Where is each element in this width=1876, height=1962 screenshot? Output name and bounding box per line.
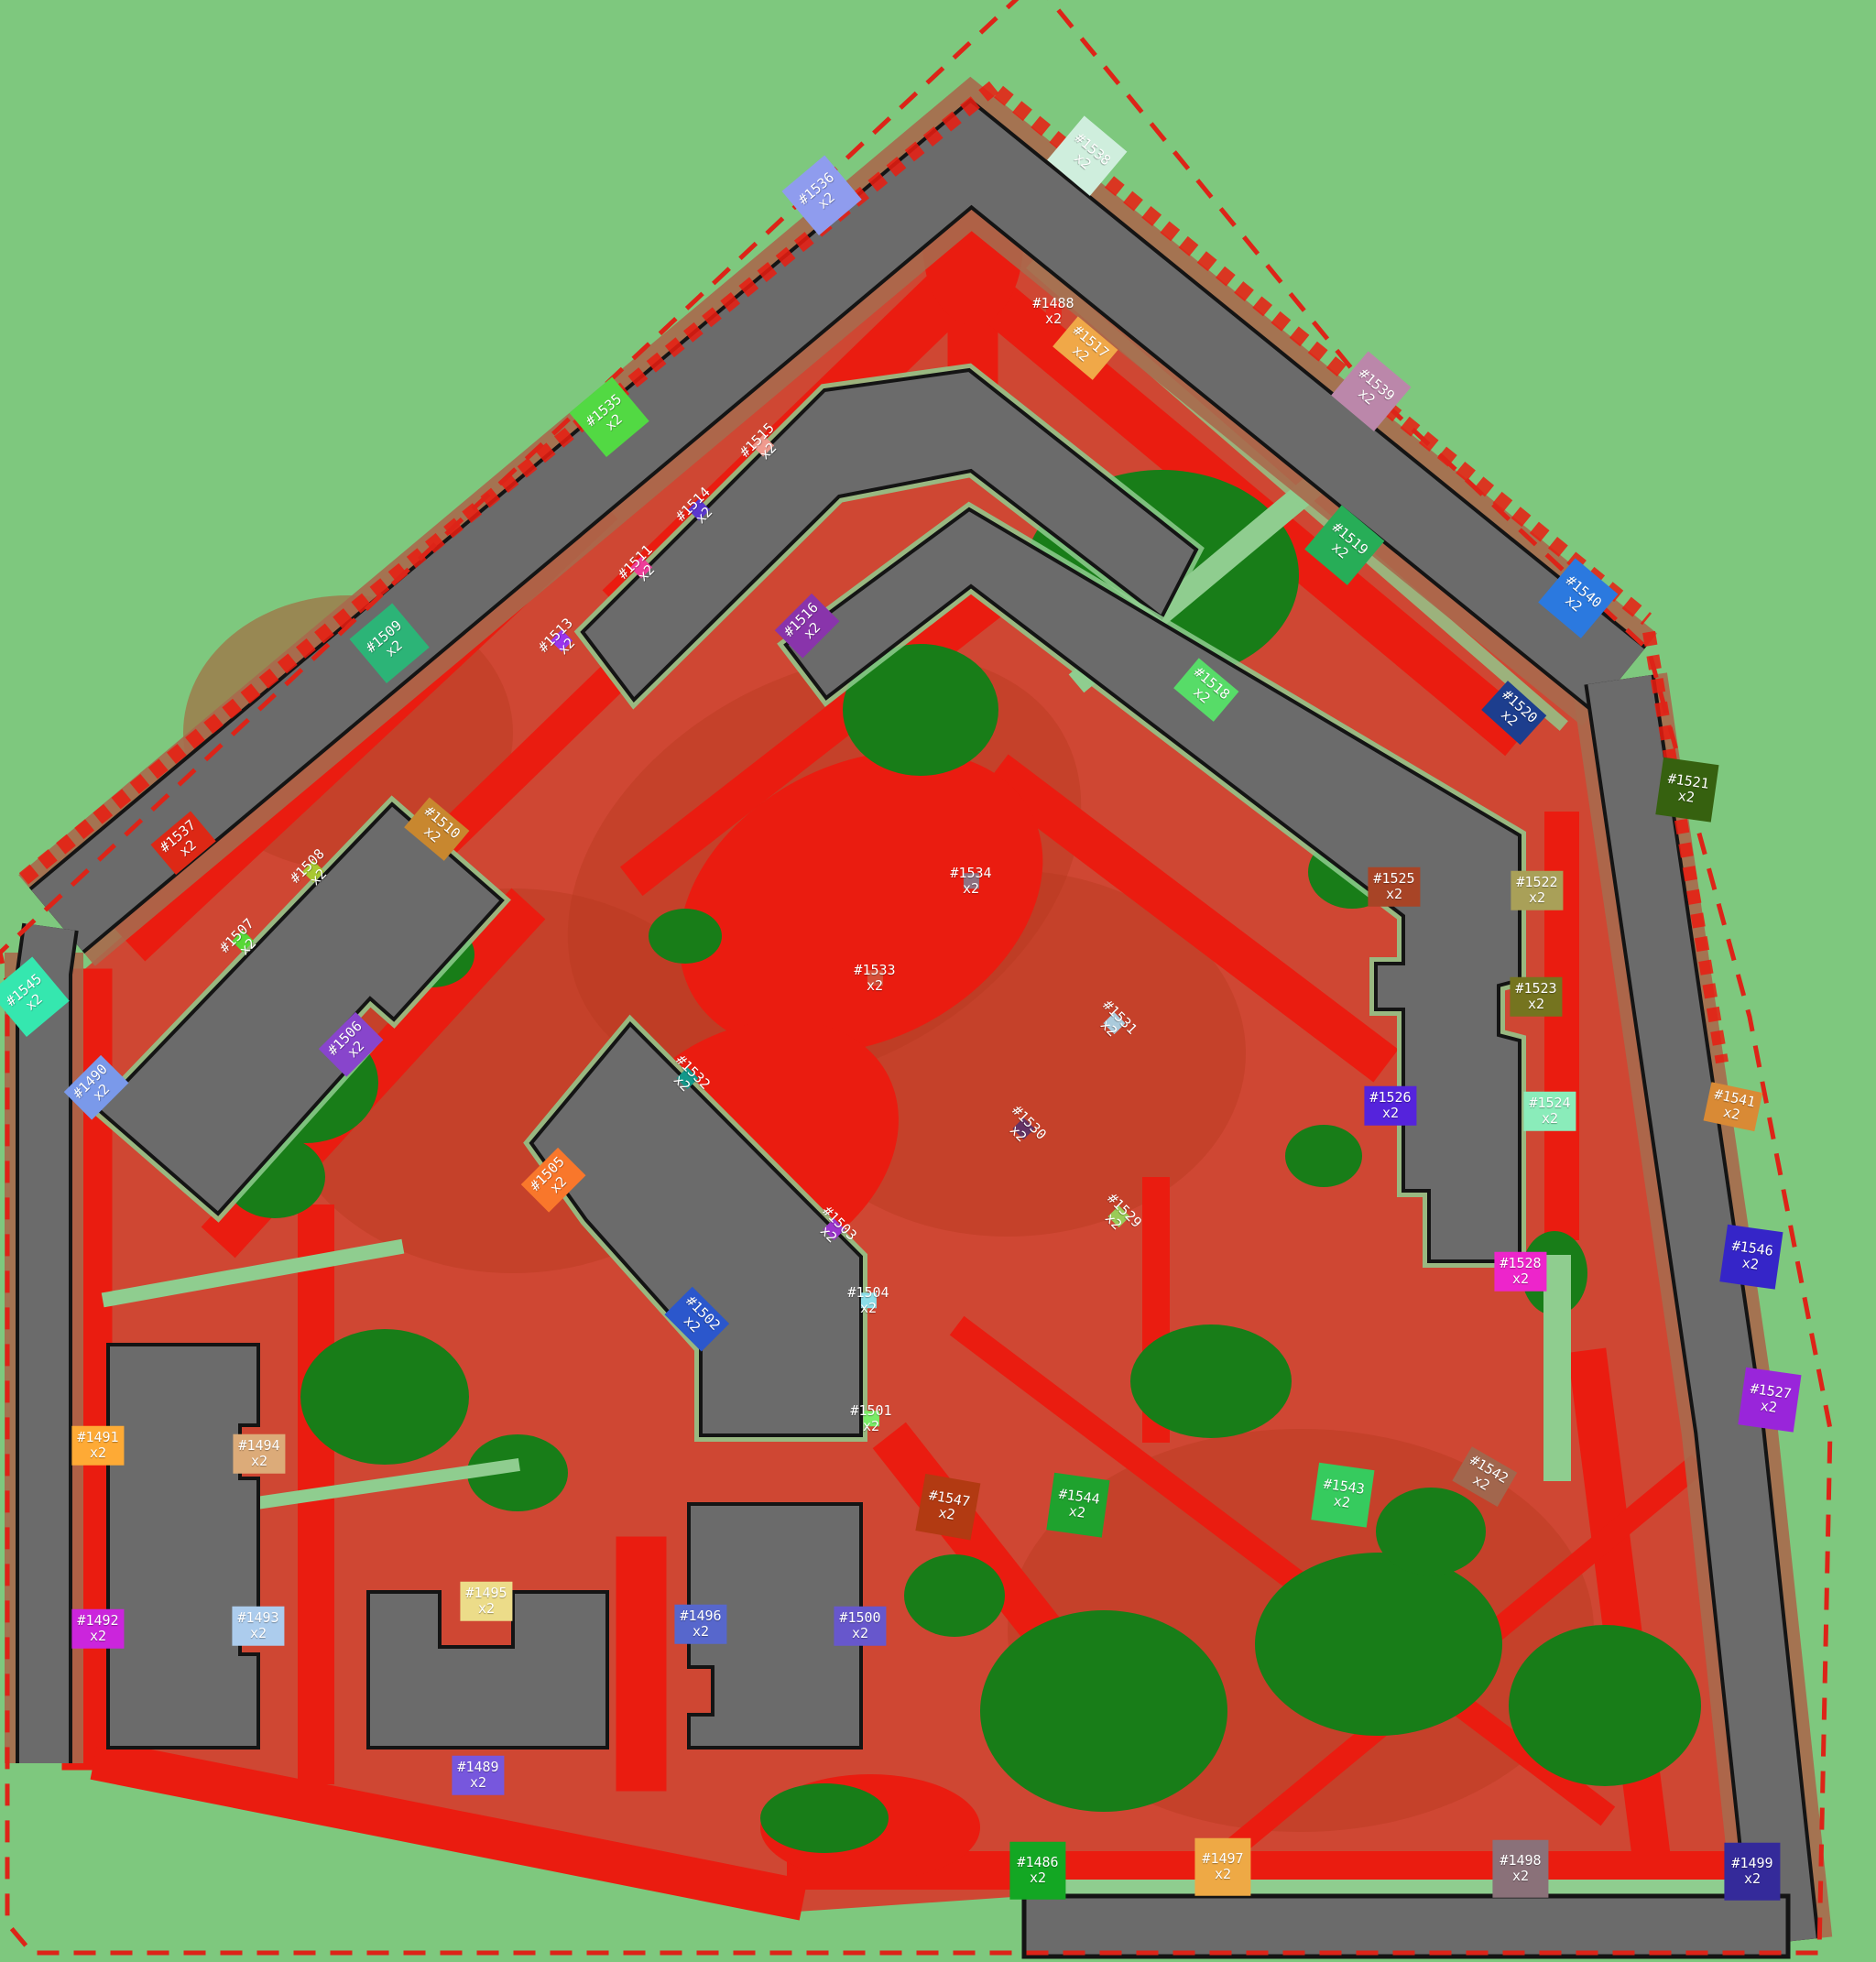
density-marker: #1523x2 [1515, 981, 1556, 1013]
marker-count: x2 [693, 1624, 709, 1640]
marker-count: x2 [1045, 311, 1062, 327]
marker-count: x2 [860, 1301, 877, 1316]
marker-id: #1533 [854, 963, 895, 978]
density-marker: #1501x2 [850, 1403, 891, 1435]
density-marker: #1498x2 [1500, 1853, 1541, 1885]
marker-count: x2 [1542, 1111, 1558, 1127]
marker-id: #1528 [1500, 1256, 1541, 1271]
marker-id: #1522 [1516, 875, 1557, 890]
marker-count: x2 [1215, 1867, 1231, 1882]
density-marker: #1544x2 [1055, 1487, 1101, 1523]
density-marker: #1492x2 [77, 1613, 118, 1645]
density-marker: #1509x2 [364, 617, 416, 668]
marker-count: x2 [1529, 890, 1545, 906]
density-marker: #1527x2 [1747, 1381, 1793, 1418]
marker-count: x2 [852, 1626, 868, 1641]
density-marker: #1488x2 [1032, 296, 1074, 328]
density-marker: #1500x2 [839, 1610, 880, 1642]
marker-count: x2 [1030, 1870, 1046, 1886]
marker-id: #1501 [850, 1403, 891, 1419]
density-marker: #1494x2 [238, 1438, 279, 1470]
marker-id: #1498 [1500, 1853, 1541, 1869]
density-marker: #1540x2 [1553, 572, 1605, 623]
marker-count: x2 [1741, 1256, 1760, 1274]
density-marker: #1525x2 [1373, 871, 1414, 903]
marker-id: #1500 [839, 1610, 880, 1626]
marker-count: x2 [863, 1419, 879, 1434]
density-marker: #1495x2 [465, 1586, 507, 1618]
marker-count: x2 [937, 1505, 956, 1523]
marker-count: x2 [1382, 1106, 1399, 1121]
bottom-wall-bar [1024, 1896, 1788, 1957]
marker-id: #1524 [1529, 1095, 1570, 1111]
density-marker: #1545x2 [4, 971, 56, 1021]
marker-id: #1488 [1032, 296, 1074, 311]
density-marker: #1526x2 [1369, 1090, 1411, 1122]
marker-count: x2 [250, 1626, 267, 1641]
marker-count: x2 [90, 1629, 106, 1644]
marker-id: #1492 [77, 1613, 118, 1629]
density-marker: #1497x2 [1202, 1851, 1243, 1883]
building-south-left [108, 1345, 258, 1748]
marker-id: #1494 [238, 1438, 279, 1454]
density-marker: #1534x2 [950, 866, 991, 898]
marker-count: x2 [1386, 887, 1402, 902]
density-marker: #1536x2 [796, 169, 848, 220]
density-marker: #1519x2 [1319, 519, 1371, 570]
marker-id: #1526 [1369, 1090, 1411, 1106]
density-marker: #1486x2 [1017, 1855, 1058, 1887]
density-marker: #1499x2 [1731, 1856, 1772, 1888]
marker-id: #1497 [1202, 1851, 1243, 1867]
density-marker: #1496x2 [680, 1608, 721, 1640]
density-marker: #1489x2 [457, 1760, 498, 1792]
marker-id: #1486 [1017, 1855, 1058, 1870]
density-marker: #1539x2 [1346, 365, 1398, 416]
marker-id: #1499 [1731, 1856, 1772, 1871]
marker-count: x2 [1760, 1399, 1778, 1417]
marker-count: x2 [478, 1601, 495, 1617]
marker-id: #1493 [237, 1610, 278, 1626]
marker-count: x2 [1722, 1105, 1741, 1124]
marker-id: #1504 [847, 1285, 889, 1301]
density-marker: #1522x2 [1516, 875, 1557, 907]
marker-id: #1534 [950, 866, 991, 881]
marker-id: #1491 [77, 1430, 118, 1445]
density-marker: #1541x2 [1709, 1086, 1756, 1126]
density-marker: #1543x2 [1320, 1477, 1366, 1513]
density-marker: #1547x2 [925, 1488, 971, 1526]
marker-count: x2 [1068, 1504, 1086, 1522]
marker-count: x2 [470, 1775, 486, 1791]
marker-id: #1525 [1373, 871, 1414, 887]
marker-id: #1523 [1515, 981, 1556, 997]
density-marker: #1546x2 [1729, 1238, 1774, 1275]
marker-count: x2 [867, 978, 883, 994]
marker-count: x2 [963, 881, 979, 897]
marker-id: #1489 [457, 1760, 498, 1775]
density-marker: #1504x2 [847, 1285, 889, 1317]
marker-count: x2 [1333, 1494, 1351, 1512]
marker-count: x2 [1528, 997, 1544, 1012]
density-marker: #1521x2 [1664, 771, 1710, 808]
density-marker: #1491x2 [77, 1430, 118, 1462]
site-map: #1536x2#1538x2#1488x2#1517x2#1539x2#1535… [0, 0, 1876, 1962]
marker-id: #1495 [465, 1586, 507, 1601]
map-canvas [0, 0, 1876, 1962]
marker-count: x2 [1512, 1271, 1529, 1287]
density-marker: #1524x2 [1529, 1095, 1570, 1128]
marker-count: x2 [251, 1454, 267, 1469]
density-marker: #1533x2 [854, 963, 895, 995]
density-marker: #1535x2 [584, 391, 636, 441]
marker-count: x2 [1744, 1871, 1761, 1887]
marker-count: x2 [90, 1445, 106, 1461]
marker-count: x2 [1677, 789, 1696, 807]
density-marker: #1493x2 [237, 1610, 278, 1642]
density-marker: #1538x2 [1062, 130, 1114, 180]
marker-count: x2 [1512, 1869, 1529, 1884]
density-marker: #1528x2 [1500, 1256, 1541, 1288]
marker-id: #1496 [680, 1608, 721, 1624]
